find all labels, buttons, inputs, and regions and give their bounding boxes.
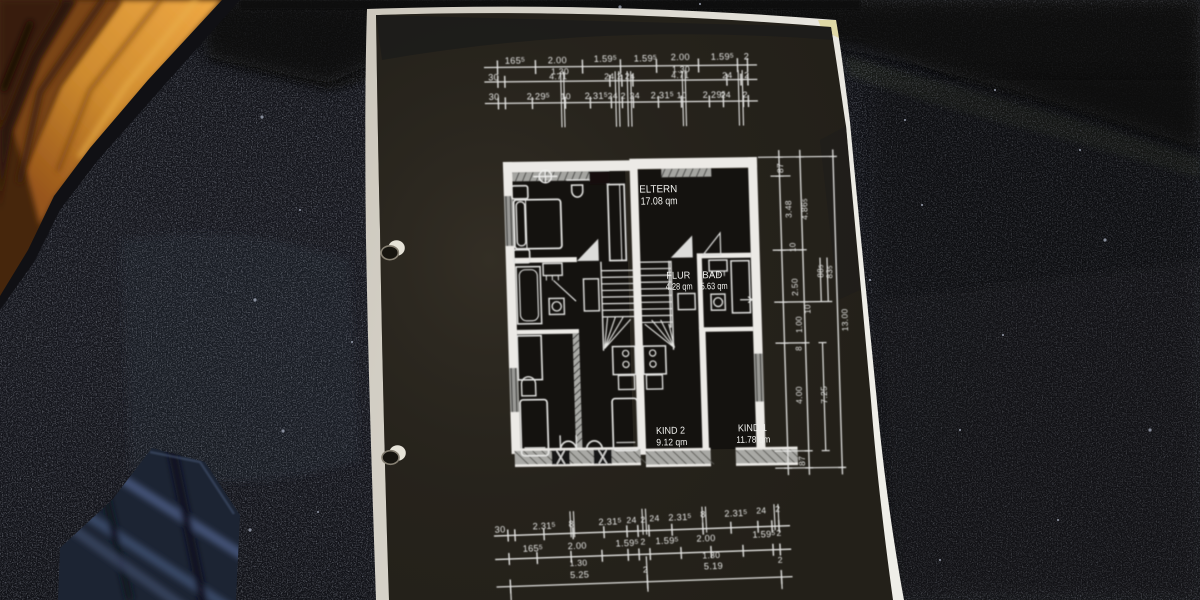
- svg-text:2.00: 2.00: [567, 541, 587, 552]
- svg-text:2.00: 2.00: [696, 533, 716, 544]
- svg-text:5.19: 5.19: [704, 561, 724, 572]
- svg-text:2: 2: [743, 90, 748, 100]
- svg-text:11.78 qm: 11.78 qm: [736, 434, 770, 445]
- svg-text:2: 2: [640, 537, 646, 547]
- svg-text:FLUR: FLUR: [666, 270, 690, 281]
- svg-text:24: 24: [626, 515, 637, 525]
- svg-text:2.50: 2.50: [790, 278, 801, 296]
- svg-text:4.00: 4.00: [794, 386, 805, 404]
- svg-text:24: 24: [722, 70, 732, 80]
- svg-text:24: 24: [721, 90, 731, 100]
- svg-text:87: 87: [797, 456, 807, 466]
- svg-text:1.00: 1.00: [795, 316, 805, 333]
- svg-text:30: 30: [494, 525, 505, 535]
- svg-text:8: 8: [795, 346, 804, 351]
- svg-text:2: 2: [621, 91, 626, 101]
- svg-text:2: 2: [776, 528, 782, 538]
- svg-text:2: 2: [777, 555, 783, 565]
- svg-text:2: 2: [643, 565, 649, 575]
- svg-text:KIND 1: KIND 1: [738, 423, 768, 434]
- svg-text:2: 2: [640, 515, 646, 525]
- svg-text:2: 2: [744, 70, 749, 80]
- svg-text:30: 30: [489, 92, 500, 102]
- svg-text:10: 10: [677, 90, 687, 100]
- svg-text:1.30: 1.30: [702, 550, 720, 561]
- svg-text:10: 10: [803, 304, 812, 314]
- svg-text:2: 2: [744, 52, 750, 62]
- svg-text:7.25: 7.25: [819, 386, 830, 404]
- svg-text:4.28 qm: 4.28 qm: [666, 281, 693, 292]
- svg-text:24: 24: [756, 505, 767, 515]
- svg-text:24: 24: [630, 91, 640, 101]
- svg-text:30: 30: [488, 72, 499, 82]
- svg-text:24: 24: [649, 513, 660, 523]
- svg-text:87: 87: [775, 163, 785, 173]
- svg-text:1.30: 1.30: [569, 558, 587, 569]
- svg-text:5.25: 5.25: [570, 570, 590, 581]
- svg-text:10: 10: [561, 91, 571, 101]
- svg-text:5.63 qm: 5.63 qm: [701, 281, 728, 292]
- svg-text:8: 8: [700, 510, 706, 520]
- svg-text:8: 8: [568, 519, 574, 529]
- svg-text:4.71: 4.71: [671, 70, 689, 80]
- svg-text:KIND 2: KIND 2: [656, 426, 686, 437]
- svg-text:ELTERN: ELTERN: [639, 183, 677, 196]
- svg-text:24: 24: [608, 91, 618, 101]
- svg-text:4.71: 4.71: [549, 71, 567, 81]
- svg-text:9.12 qm: 9.12 qm: [656, 437, 687, 448]
- svg-text:3.48: 3.48: [783, 200, 794, 218]
- svg-text:17.08 qm: 17.08 qm: [640, 195, 678, 208]
- svg-text:2.00: 2.00: [671, 52, 690, 62]
- svg-text:10: 10: [788, 242, 797, 252]
- svg-text:13.00: 13.00: [839, 308, 850, 331]
- svg-text:BAD: BAD: [702, 270, 722, 281]
- svg-text:24 2 24: 24 2 24: [604, 71, 635, 81]
- svg-text:2.00: 2.00: [548, 55, 567, 65]
- svg-text:2: 2: [775, 504, 781, 514]
